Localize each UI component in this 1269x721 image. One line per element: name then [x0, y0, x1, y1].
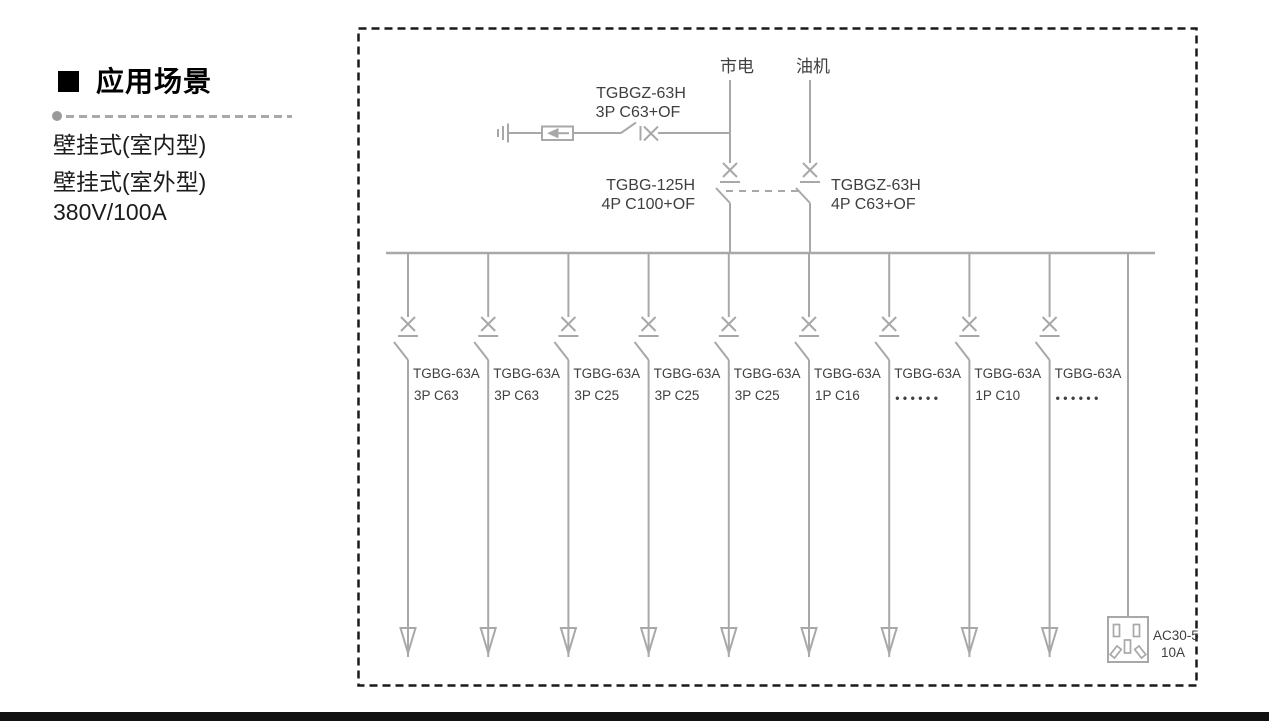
branch-spec: 1P C16 — [815, 388, 860, 403]
branch-spec: 1P C10 — [975, 388, 1020, 403]
branch-spec: •••••• — [895, 391, 941, 405]
breaker-icon — [401, 317, 415, 331]
breaker-icon — [642, 317, 656, 331]
diagram-border — [359, 29, 1197, 686]
breaker-icon — [882, 317, 896, 331]
branch-circuit: TGBG-63A3P C25 — [554, 253, 640, 657]
branch-circuit: TGBG-63A1P C10 — [955, 253, 1041, 657]
socket-model: AC30-5 — [1153, 628, 1199, 643]
generator-breaker-spec: 4P C63+OF — [831, 196, 916, 213]
branch-circuit: TGBG-63A1P C16 — [795, 253, 881, 657]
branch-model: TGBG-63A — [734, 366, 801, 381]
branch-spec: 3P C63 — [494, 388, 539, 403]
branch-model: TGBG-63A — [974, 366, 1041, 381]
page: 应用场景 壁挂式(室内型) 壁挂式(室外型) 380V/100A — [0, 0, 1269, 721]
single-line-diagram: TGBG-63A3P C63TGBG-63A3P C63TGBG-63A3P C… — [0, 0, 1269, 721]
branch-model: TGBG-63A — [894, 366, 961, 381]
mains-breaker-model: TGBG-125H — [606, 177, 695, 194]
branch-model: TGBG-63A — [654, 366, 721, 381]
bottom-bar — [0, 712, 1269, 721]
breaker-icon — [962, 317, 976, 331]
branch-circuit: TGBG-63A3P C25 — [635, 253, 721, 657]
mains-label: 市电 — [720, 57, 754, 76]
branch-spec: 3P C25 — [574, 388, 619, 403]
breaker-icon — [1043, 317, 1057, 331]
generator-label: 油机 — [796, 57, 830, 76]
breaker-icon — [561, 317, 575, 331]
branch-spec: 3P C25 — [655, 388, 700, 403]
branch-circuit: TGBG-63A3P C63 — [394, 253, 480, 657]
branch-spec: 3P C63 — [414, 388, 459, 403]
spd-breaker-model: TGBGZ-63H — [596, 85, 686, 102]
spd-branch — [498, 123, 730, 143]
branch-circuit: TGBG-63A3P C25 — [715, 253, 801, 657]
generator-feeder-line — [796, 80, 820, 253]
breaker-icon — [481, 317, 495, 331]
branch-model: TGBG-63A — [413, 366, 480, 381]
mains-breaker-spec: 4P C100+OF — [601, 196, 695, 213]
mains-feeder-line — [716, 80, 740, 253]
branch-model: TGBG-63A — [573, 366, 640, 381]
branch-model: TGBG-63A — [493, 366, 560, 381]
breaker-icon — [722, 317, 736, 331]
breaker-icon — [802, 317, 816, 331]
branch-model: TGBG-63A — [814, 366, 881, 381]
branch-spec: •••••• — [1056, 391, 1102, 405]
branch-circuit: TGBG-63A3P C63 — [474, 253, 560, 657]
spd-arrow-icon — [547, 128, 559, 138]
generator-breaker-model: TGBGZ-63H — [831, 177, 921, 194]
socket-icon — [1108, 617, 1148, 662]
branch-circuit: TGBG-63A•••••• — [875, 253, 961, 657]
branch-spec: 3P C25 — [735, 388, 780, 403]
spd-breaker-spec: 3P C63+OF — [596, 104, 681, 121]
socket-rating: 10A — [1161, 645, 1185, 660]
branch-model: TGBG-63A — [1055, 366, 1122, 381]
branch-circuit: TGBG-63A•••••• — [1036, 253, 1122, 657]
